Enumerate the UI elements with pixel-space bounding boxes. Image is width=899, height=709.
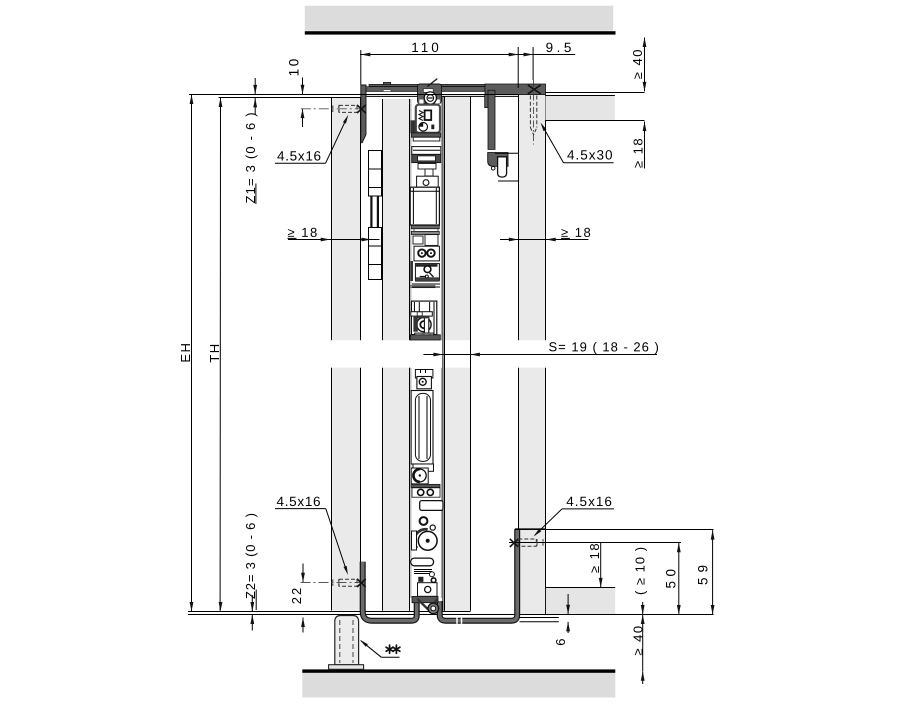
svg-text:EH: EH	[178, 342, 193, 363]
svg-text:10: 10	[286, 56, 301, 76]
svg-text:110: 110	[411, 40, 442, 55]
svg-text:9.5: 9.5	[546, 40, 575, 55]
svg-text:( ≥ 10 ): ( ≥ 10 )	[633, 546, 648, 595]
svg-text:≥ 40: ≥ 40	[630, 48, 645, 79]
svg-text:4.5x30: 4.5x30	[567, 148, 614, 163]
svg-text:4.5x16: 4.5x16	[566, 494, 613, 509]
svg-text:≥ 40: ≥ 40	[630, 624, 645, 655]
svg-text:4.5x16: 4.5x16	[277, 149, 322, 164]
svg-text:≥ 18: ≥ 18	[631, 137, 646, 168]
svg-text:TH: TH	[207, 342, 222, 362]
svg-text:4.5x16: 4.5x16	[276, 494, 321, 509]
svg-text:≥ 18: ≥ 18	[561, 225, 592, 240]
svg-text:22: 22	[289, 586, 304, 604]
svg-text:S= 19 ( 18 - 26 ): S= 19 ( 18 - 26 )	[548, 339, 659, 354]
svg-text:6: 6	[553, 638, 568, 646]
svg-text:59: 59	[696, 560, 711, 585]
svg-text:≥ 18: ≥ 18	[287, 225, 318, 240]
svg-text:≥ 18: ≥ 18	[587, 542, 602, 573]
svg-text:Z2= 3 (0 - 6 ): Z2= 3 (0 - 6 )	[243, 512, 258, 599]
svg-text:50: 50	[664, 564, 679, 588]
